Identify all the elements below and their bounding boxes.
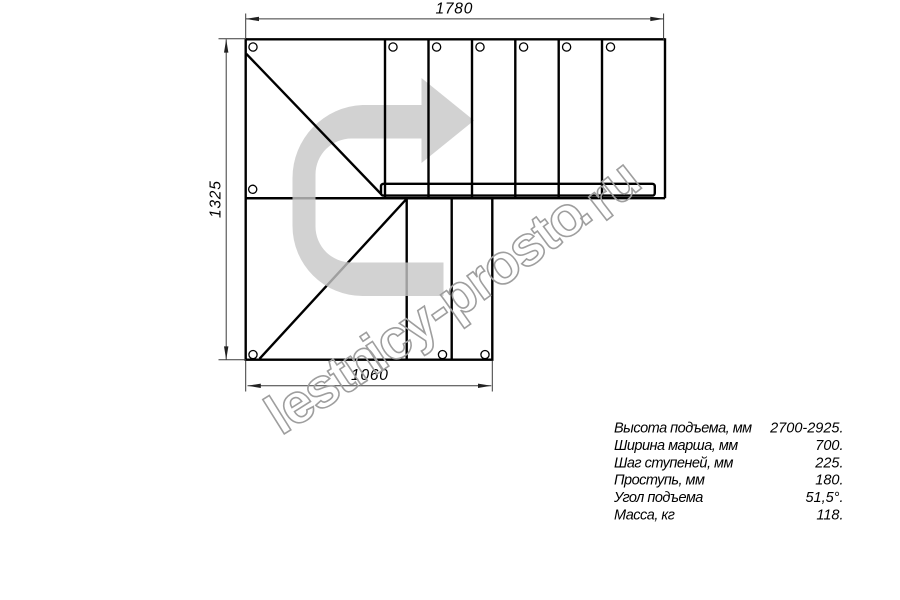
svg-text:Шаг ступеней, мм: Шаг ступеней, мм [614,455,733,471]
svg-text:225.: 225. [814,455,843,471]
svg-text:2700-2925.: 2700-2925. [769,421,843,437]
svg-text:1325: 1325 [208,180,225,218]
svg-text:Высота подъема, мм: Высота подъема, мм [614,421,752,437]
svg-text:Угол подъема: Угол подъема [613,490,703,506]
svg-text:51,5°.: 51,5°. [805,490,843,506]
svg-text:Масса, кг: Масса, кг [614,508,675,524]
svg-text:700.: 700. [815,438,843,454]
svg-text:1780: 1780 [435,0,473,17]
svg-text:118.: 118. [816,508,843,524]
svg-text:180.: 180. [815,473,843,489]
svg-text:Проступь, мм: Проступь, мм [614,473,705,489]
svg-text:Ширина марша, мм: Ширина марша, мм [614,438,738,454]
